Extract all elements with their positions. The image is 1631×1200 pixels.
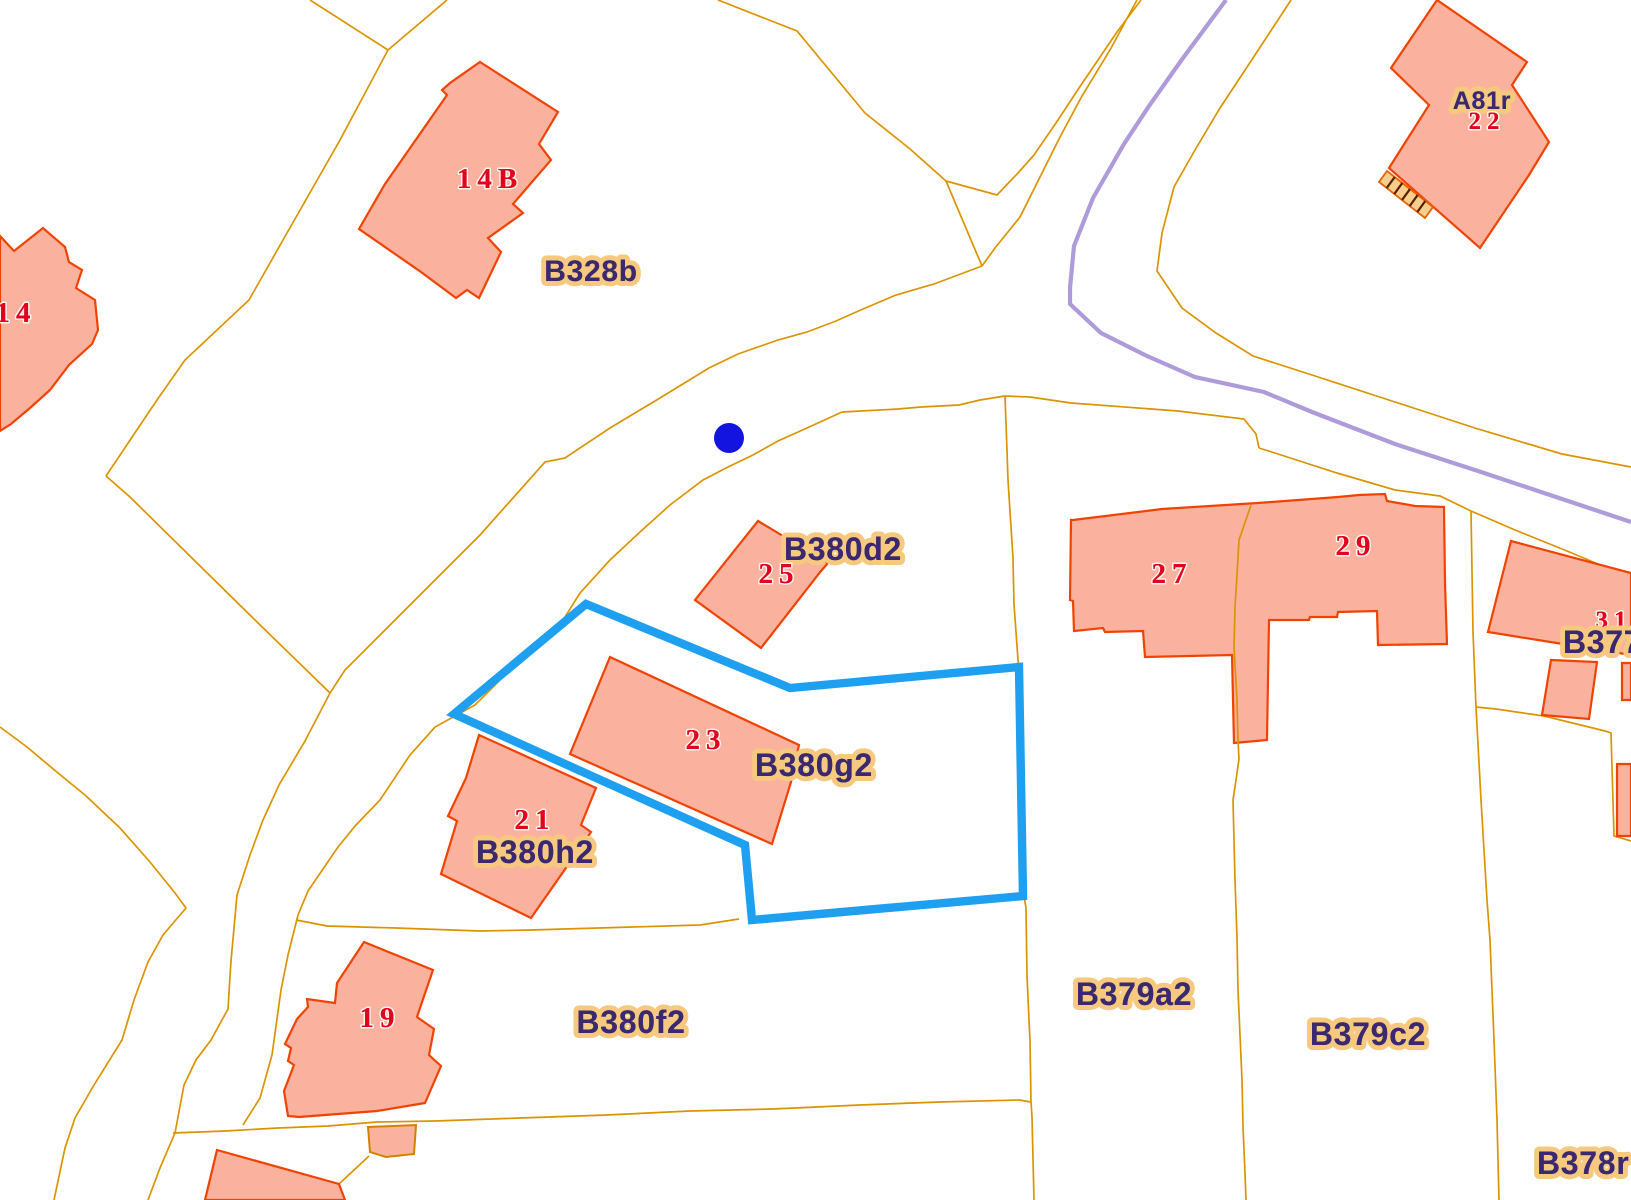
svg-text:B380h2: B380h2 [476, 834, 594, 870]
svg-text:25: 25 [759, 558, 800, 590]
svg-text:29: 29 [1336, 530, 1377, 562]
svg-text:B328b: B328b [544, 255, 638, 288]
svg-text:B379a2: B379a2 [1076, 976, 1192, 1012]
svg-text:14: 14 [0, 297, 37, 329]
svg-text:B380d2: B380d2 [784, 531, 902, 567]
svg-text:B377: B377 [1563, 624, 1631, 660]
svg-text:B378r: B378r [1537, 1145, 1629, 1181]
svg-text:22: 22 [1469, 108, 1506, 135]
svg-text:27: 27 [1152, 558, 1193, 590]
svg-text:B380f2: B380f2 [576, 1004, 685, 1040]
svg-text:23: 23 [686, 724, 727, 756]
svg-text:21: 21 [515, 804, 556, 836]
svg-text:14B: 14B [457, 163, 523, 195]
svg-text:B379c2: B379c2 [1310, 1016, 1426, 1052]
svg-text:B380g2: B380g2 [755, 747, 873, 783]
svg-text:19: 19 [360, 1002, 401, 1034]
